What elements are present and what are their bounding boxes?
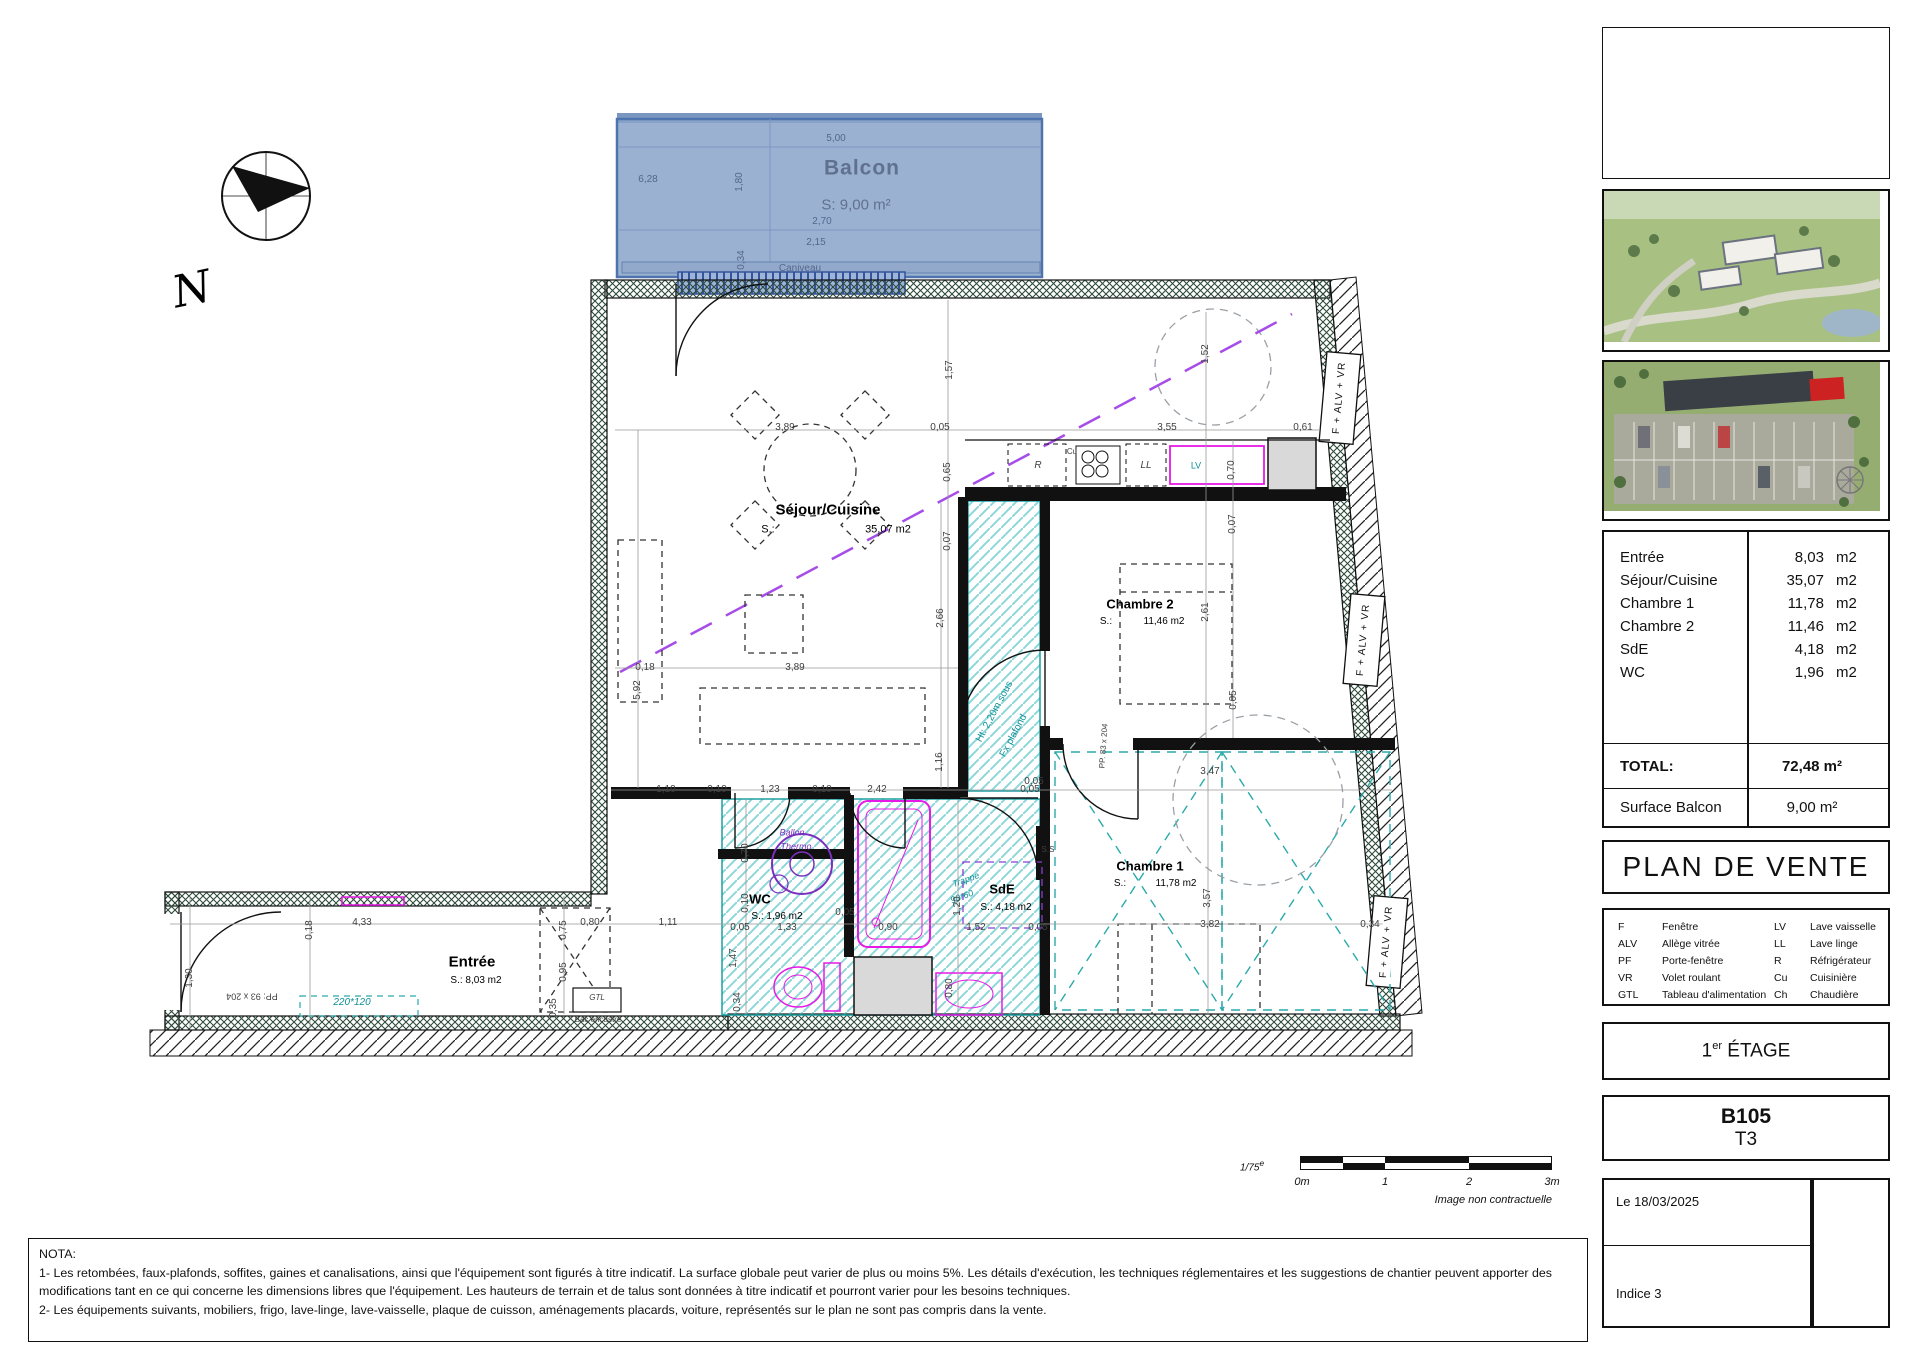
area-table: Entrée8,03m2Séjour/Cuisine35,07m2Chambre… bbox=[1602, 530, 1890, 828]
legend-abbr: GTL bbox=[1618, 989, 1662, 1001]
dining-table bbox=[764, 424, 856, 516]
legend-row: VRVolet roulantCuCuisinière bbox=[1618, 969, 1888, 986]
legend-abbr: R bbox=[1774, 955, 1810, 967]
scale-bar: 1/75e 0m 1 2 3m Image non contractuelle bbox=[1240, 1150, 1580, 1210]
fridge-box bbox=[1008, 444, 1066, 486]
legend-abbr: VR bbox=[1618, 972, 1662, 984]
date-value: Le 18/03/2025 bbox=[1604, 1180, 1810, 1246]
photo-aerial-image bbox=[1604, 191, 1880, 342]
area-row-unit: m2 bbox=[1824, 664, 1857, 681]
area-row: SdE4,18m2 bbox=[1604, 638, 1888, 661]
scale-0m: 0m bbox=[1294, 1176, 1309, 1188]
bed-chambre2 bbox=[1120, 564, 1232, 704]
sheet-title: PLAN DE VENTE bbox=[1602, 840, 1890, 894]
area-row-unit: m2 bbox=[1824, 595, 1857, 612]
area-row-value: 11,78 bbox=[1747, 595, 1824, 612]
scale-ratio: 1/75e bbox=[1240, 1158, 1264, 1173]
sofa bbox=[700, 688, 925, 744]
washer-box bbox=[1126, 444, 1166, 486]
photo-aerial bbox=[1602, 189, 1890, 352]
north-arrow-icon bbox=[222, 152, 310, 240]
dishwasher-box bbox=[1170, 446, 1264, 484]
legend-abbr: Ch bbox=[1774, 989, 1810, 1001]
balcony-surface-label: Surface Balcon bbox=[1604, 799, 1747, 816]
logo-box bbox=[1602, 27, 1890, 179]
total-row: TOTAL: 72,48 m² bbox=[1604, 743, 1888, 789]
legend-row: GTLTableau d'alimentationChChaudière bbox=[1618, 986, 1888, 1003]
area-row-value: 11,46 bbox=[1747, 618, 1824, 635]
unit-type: T3 bbox=[1735, 1129, 1757, 1151]
area-row: Chambre 111,78m2 bbox=[1604, 592, 1888, 615]
non-contractual-note: Image non contractuelle bbox=[1435, 1194, 1552, 1206]
area-row-label: Entrée bbox=[1604, 549, 1747, 566]
area-row-label: SdE bbox=[1604, 641, 1747, 658]
legend-abbr: ALV bbox=[1618, 938, 1662, 950]
dashed-circles bbox=[1155, 309, 1343, 885]
total-value: 72,48 m² bbox=[1747, 758, 1877, 775]
scale-3m: 3m bbox=[1544, 1176, 1559, 1188]
bed-chambre1 bbox=[1118, 924, 1260, 1014]
legend-rows: FFenêtreLVLave vaisselleALVAllège vitrée… bbox=[1618, 918, 1888, 1003]
legend-row: FFenêtreLVLave vaisselle bbox=[1618, 918, 1888, 935]
legend-label: Chaudière bbox=[1810, 989, 1888, 1001]
indice-value: Indice 3 bbox=[1604, 1246, 1810, 1301]
scale-1m: 1 bbox=[1382, 1176, 1388, 1188]
legend-label: Réfrigérateur bbox=[1810, 955, 1888, 967]
area-row-label: Chambre 1 bbox=[1604, 595, 1747, 612]
area-row-unit: m2 bbox=[1824, 549, 1857, 566]
unit-code: B105 bbox=[1721, 1105, 1771, 1129]
legend-abbr: PF bbox=[1618, 955, 1662, 967]
area-row: Entrée8,03m2 bbox=[1604, 546, 1888, 569]
nota-line2: modifications tant en ce qui concerne le… bbox=[39, 1282, 1577, 1301]
nota-line3: 2- Les équipements suivants, mobiliers, … bbox=[39, 1301, 1577, 1320]
scale-2m: 2 bbox=[1466, 1176, 1472, 1188]
area-row-label: Chambre 2 bbox=[1604, 618, 1747, 635]
legend-label: Fenêtre bbox=[1662, 921, 1774, 933]
legend-label: Lave vaisselle bbox=[1810, 921, 1888, 933]
nota-line1: 1- Les retombées, faux-plafonds, soffite… bbox=[39, 1264, 1577, 1283]
legend-row: PFPorte-fenêtreRRéfrigérateur bbox=[1618, 952, 1888, 969]
shelf bbox=[618, 540, 662, 702]
photo-site-plan bbox=[1602, 360, 1890, 521]
hob-box bbox=[1076, 446, 1120, 484]
entree-marks bbox=[300, 988, 621, 1016]
area-row-label: Séjour/Cuisine bbox=[1604, 572, 1747, 589]
area-row: Séjour/Cuisine35,07m2 bbox=[1604, 569, 1888, 592]
sheet-title-text: PLAN DE VENTE bbox=[1623, 851, 1870, 883]
area-row-value: 4,18 bbox=[1747, 641, 1824, 658]
date-box: Le 18/03/2025 Indice 3 bbox=[1602, 1178, 1812, 1328]
total-label: TOTAL: bbox=[1604, 758, 1747, 775]
legend-abbr: LL bbox=[1774, 938, 1810, 950]
balcony-surface-value: 9,00 m² bbox=[1747, 799, 1877, 816]
area-row-unit: m2 bbox=[1824, 572, 1857, 589]
area-row-unit: m2 bbox=[1824, 641, 1857, 658]
area-row-value: 35,07 bbox=[1747, 572, 1824, 589]
area-table-rows: Entrée8,03m2Séjour/Cuisine35,07m2Chambre… bbox=[1604, 546, 1888, 684]
nota-title: NOTA: bbox=[39, 1245, 1577, 1264]
chambre1-placard-marks bbox=[1055, 752, 1390, 1010]
legend-row: ALVAllège vitréeLLLave linge bbox=[1618, 935, 1888, 952]
area-row-unit: m2 bbox=[1824, 618, 1857, 635]
legend-label: Cuisinière bbox=[1810, 972, 1888, 984]
legend-label: Tableau d'alimentation bbox=[1662, 989, 1774, 1001]
scale-bar-graphic bbox=[1300, 1156, 1552, 1170]
plan-de-vente-sheet: 5,00BalconS: 9,00 m²6,281,802,702,150,34… bbox=[0, 0, 1925, 1359]
area-row-label: WC bbox=[1604, 664, 1747, 681]
legend-box: FFenêtreLVLave vaisselleALVAllège vitrée… bbox=[1602, 908, 1890, 1006]
legend-label: Volet roulant bbox=[1662, 972, 1774, 984]
balcony-zone bbox=[617, 113, 1042, 294]
area-row-value: 8,03 bbox=[1747, 549, 1824, 566]
legend-abbr: LV bbox=[1774, 921, 1810, 933]
legend-label: Allège vitrée bbox=[1662, 938, 1774, 950]
floor-box: 1er ÉTAGE bbox=[1602, 1022, 1890, 1080]
legend-abbr: Cu bbox=[1774, 972, 1810, 984]
balcony-row: Surface Balcon 9,00 m² bbox=[1604, 787, 1888, 828]
nota-box: NOTA: 1- Les retombées, faux-plafonds, s… bbox=[28, 1238, 1588, 1342]
teal-zones bbox=[722, 501, 1390, 1015]
area-row: Chambre 211,46m2 bbox=[1604, 615, 1888, 638]
legend-label: Porte-fenêtre bbox=[1662, 955, 1774, 967]
legend-abbr: F bbox=[1618, 921, 1662, 933]
side-strip-box bbox=[1812, 1178, 1890, 1328]
area-row-value: 1,96 bbox=[1747, 664, 1824, 681]
coffee-table bbox=[745, 595, 803, 653]
legend-label: Lave linge bbox=[1810, 938, 1888, 950]
unit-box: B105 T3 bbox=[1602, 1095, 1890, 1161]
floor-label: 1er ÉTAGE bbox=[1702, 1040, 1791, 1062]
photo-site-plan-image bbox=[1604, 362, 1880, 511]
area-row: WC1,96m2 bbox=[1604, 661, 1888, 684]
